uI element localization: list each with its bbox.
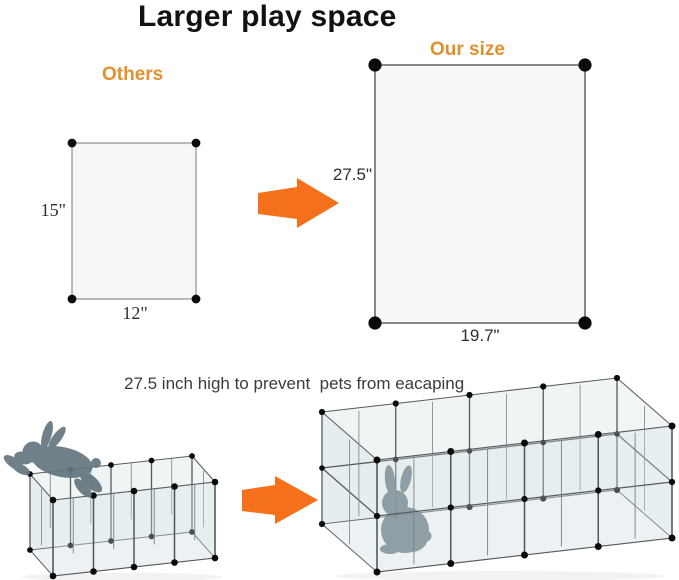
our-size-label: Our size xyxy=(430,39,505,61)
page-title: Larger play space xyxy=(138,0,397,34)
others-panel-width-label: 12" xyxy=(108,303,162,324)
diagram-graphics xyxy=(0,0,679,580)
our-panel-width-label: 19.7" xyxy=(453,326,507,346)
others-label: Others xyxy=(102,64,163,86)
small-panel-diagram xyxy=(68,139,201,304)
right-arrow-icon xyxy=(242,476,318,524)
right-arrow-icon xyxy=(258,178,339,228)
others-panel-height-label: 15" xyxy=(28,200,66,221)
large-panel-diagram xyxy=(368,58,591,329)
large-playpen-illustration xyxy=(319,375,676,580)
our-panel-height-label: 27.5" xyxy=(320,165,372,185)
product-comparison-image: Larger play space Others Our size 15" 12… xyxy=(0,0,679,580)
height-caption: 27.5 inch high to prevent pets from eaca… xyxy=(124,374,464,394)
